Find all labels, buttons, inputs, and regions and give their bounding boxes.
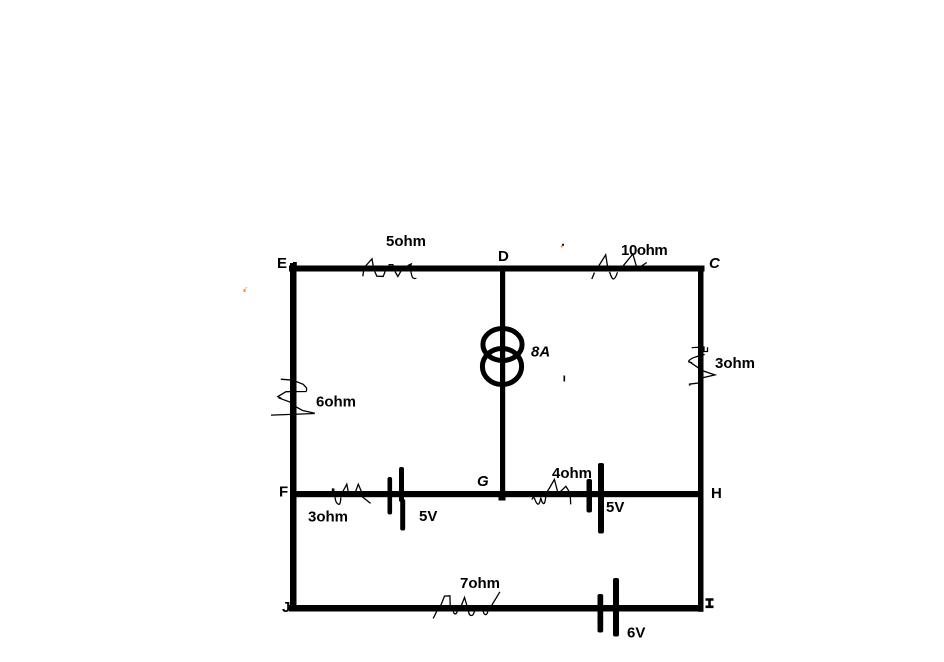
svg-text:6V: 6V xyxy=(627,625,645,642)
svg-text:5V: 5V xyxy=(419,508,437,525)
svg-text:7ohm: 7ohm xyxy=(460,575,500,592)
svg-text:D: D xyxy=(498,248,509,265)
svg-text:5V: 5V xyxy=(606,499,624,516)
svg-text:4ohm: 4ohm xyxy=(552,465,592,482)
svg-text:H: H xyxy=(711,485,722,502)
svg-text:8A: 8A xyxy=(531,344,550,361)
svg-text:F: F xyxy=(279,484,288,501)
svg-text:10ohm: 10ohm xyxy=(621,242,667,259)
svg-text:5ohm: 5ohm xyxy=(386,233,426,250)
svg-text:3ohm: 3ohm xyxy=(308,509,348,526)
svg-text:C: C xyxy=(709,255,721,272)
svg-text:E: E xyxy=(277,255,287,272)
svg-text:G: G xyxy=(477,473,489,490)
svg-text:3ohm: 3ohm xyxy=(715,355,755,372)
svg-text:6ohm: 6ohm xyxy=(316,394,356,411)
svg-text:J: J xyxy=(282,599,290,616)
